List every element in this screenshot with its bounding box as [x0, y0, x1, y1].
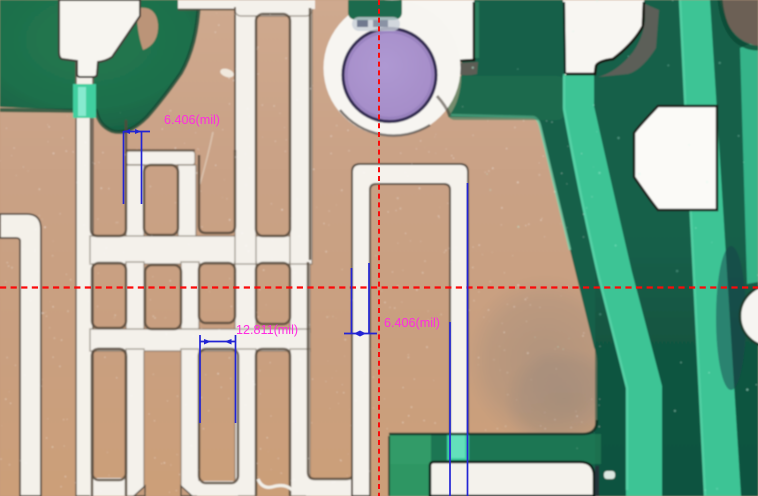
svg-text:12.811(mil): 12.811(mil): [236, 323, 298, 337]
svg-text:6.406(mil): 6.406(mil): [164, 113, 220, 127]
svg-text:6.406(mil): 6.406(mil): [384, 316, 440, 330]
